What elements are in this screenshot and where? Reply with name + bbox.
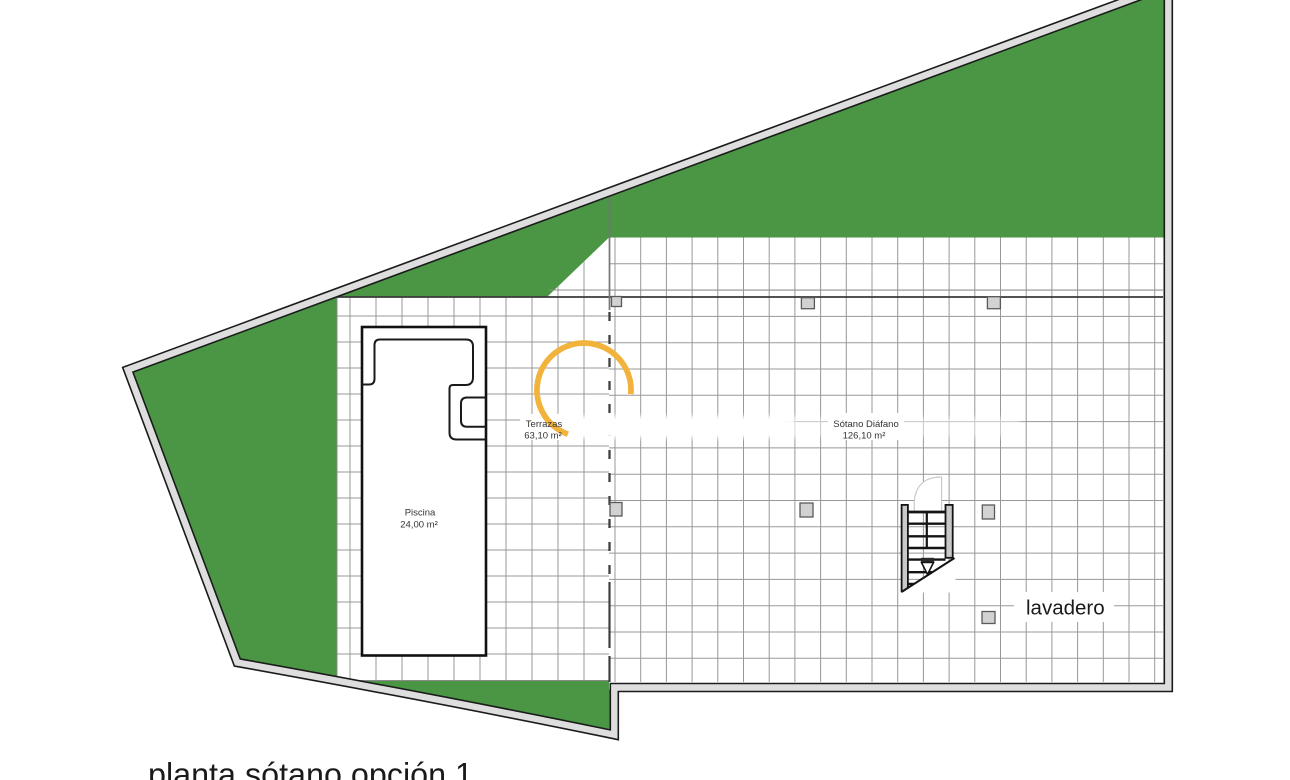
svg-text:24,00 m²: 24,00 m²	[400, 520, 438, 531]
svg-text:Sótano Diáfano: Sótano Diáfano	[833, 419, 899, 430]
svg-text:Terrazas: Terrazas	[526, 419, 563, 430]
svg-text:63,10 m²: 63,10 m²	[524, 430, 562, 441]
svg-text:126,10 m²: 126,10 m²	[843, 430, 886, 441]
svg-text:Piscina: Piscina	[405, 507, 436, 518]
svg-text:lavadero: lavadero	[1026, 596, 1105, 619]
svg-text:planta sótano opción 1: planta sótano opción 1	[148, 756, 473, 780]
